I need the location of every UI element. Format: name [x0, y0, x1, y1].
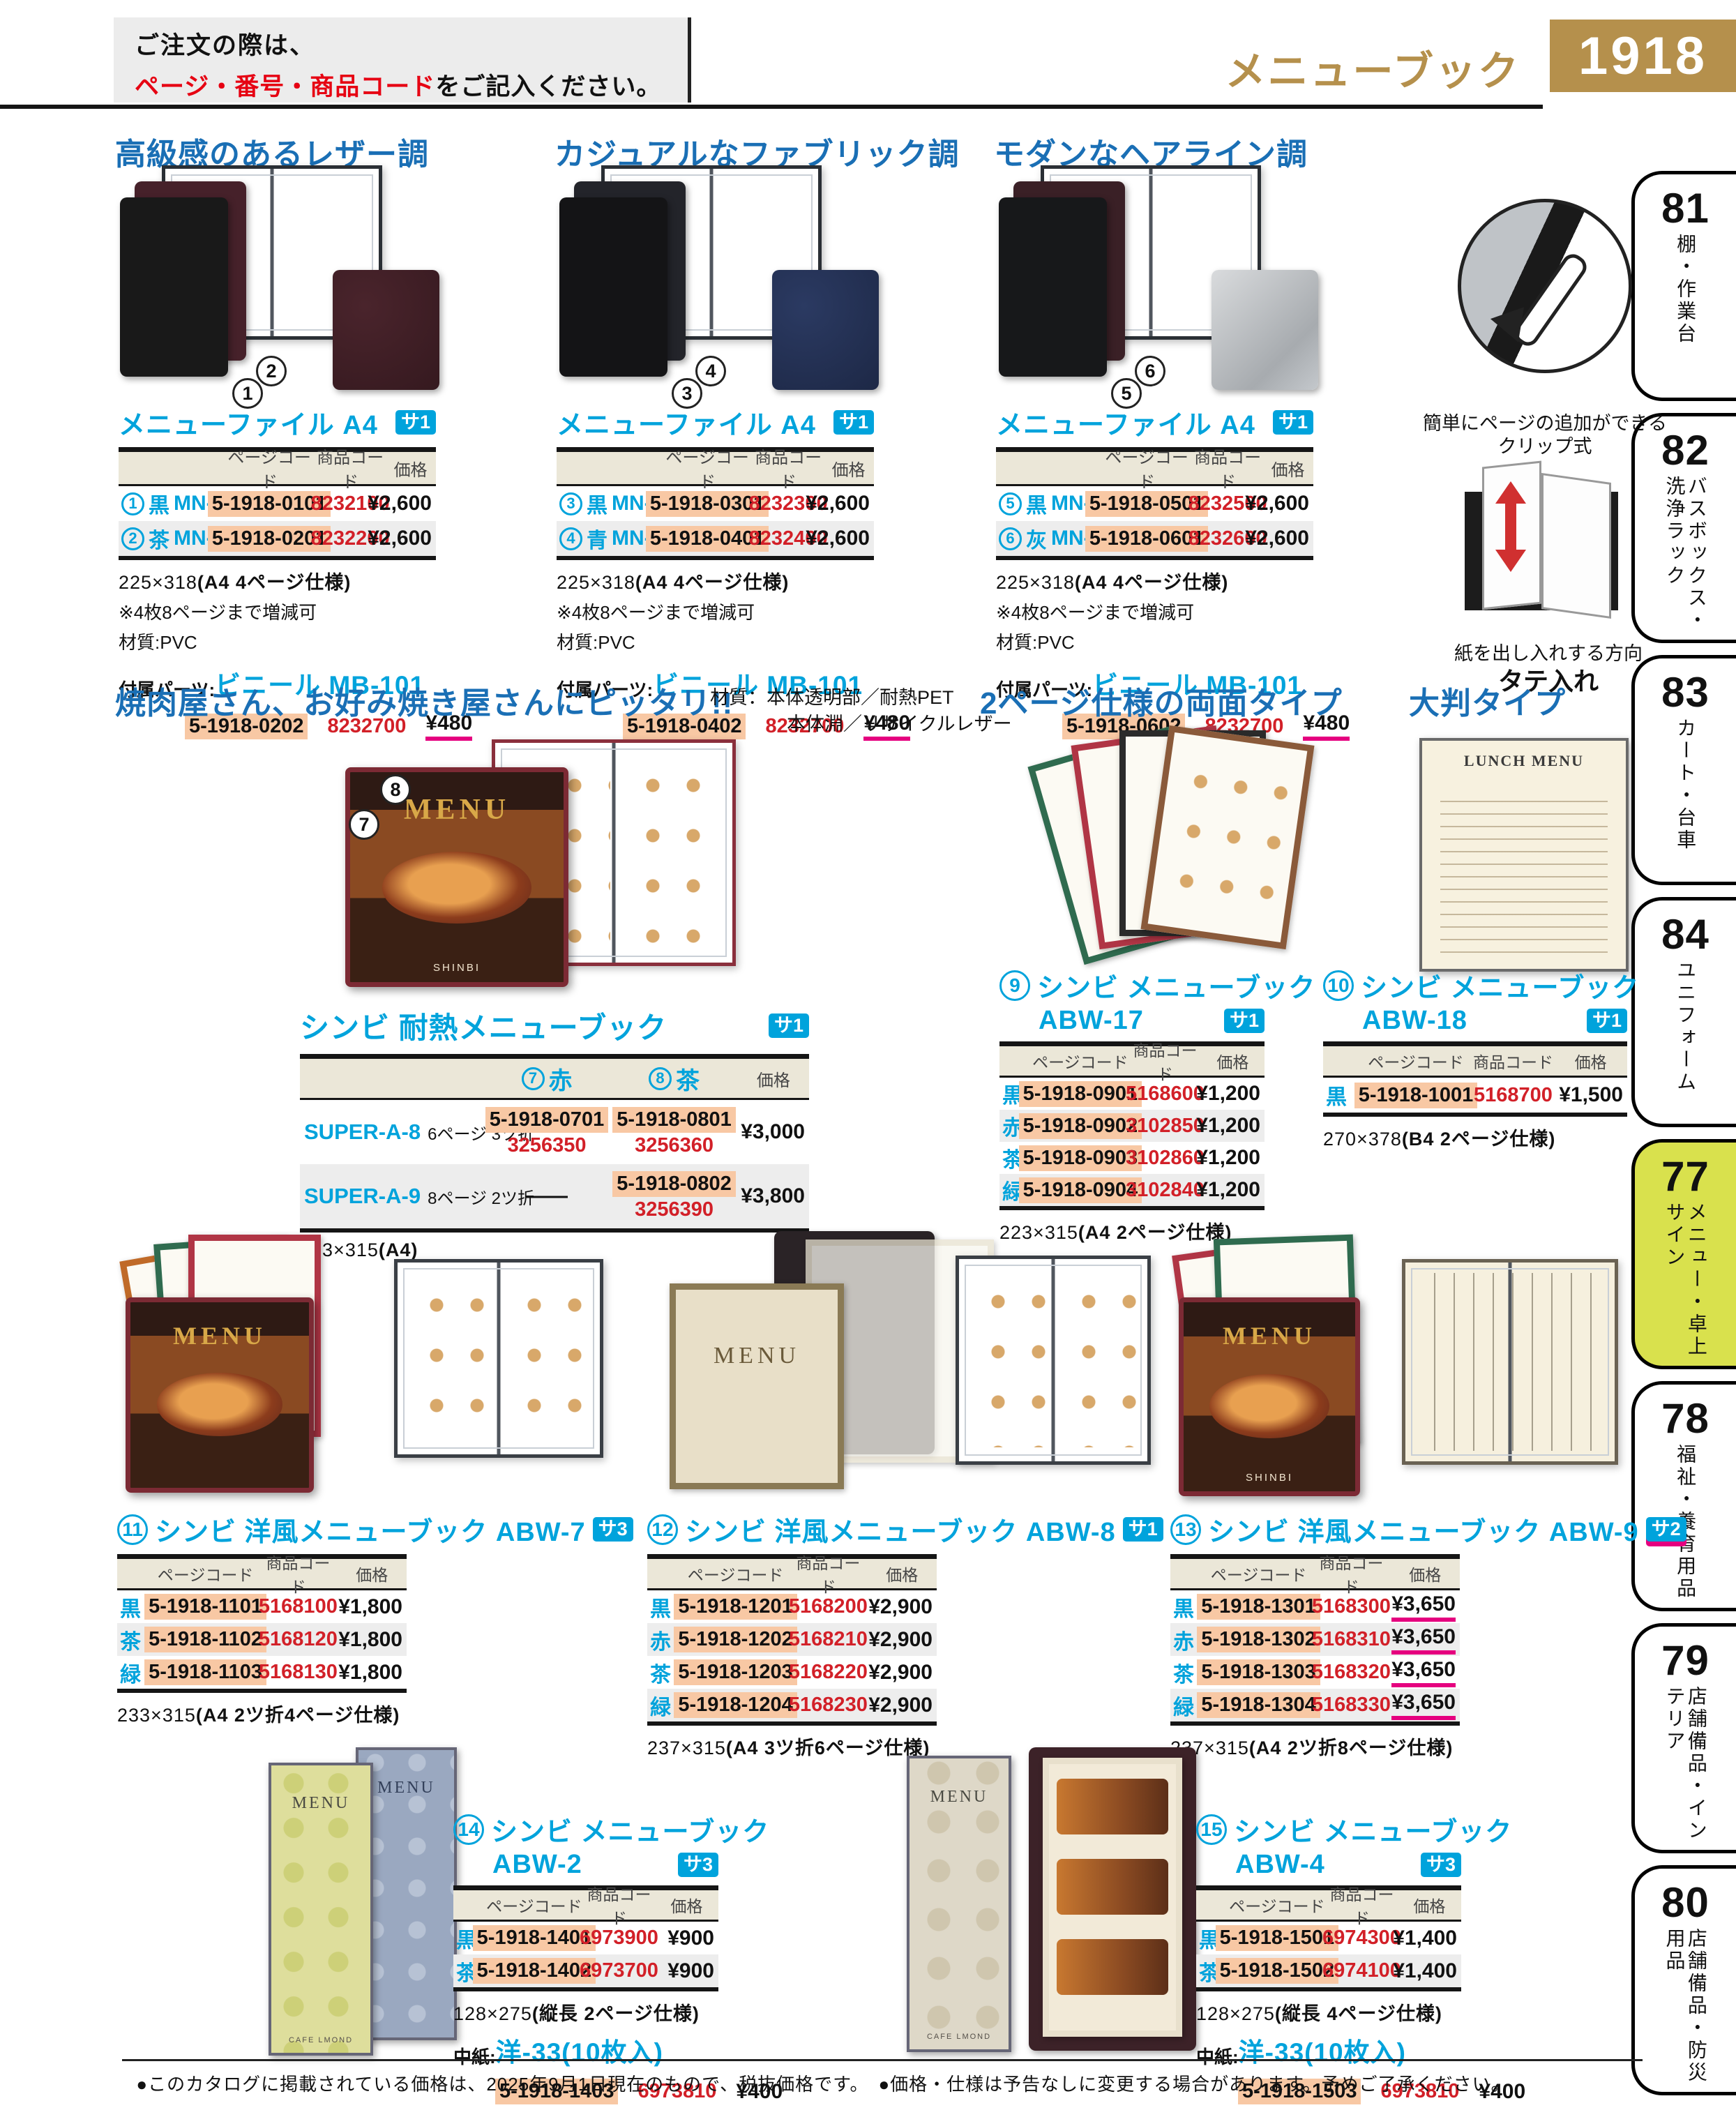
catalog-badge: サ2 [1646, 1517, 1686, 1542]
col-item-code: 商品コード [315, 444, 385, 492]
no-item-dash: —— [526, 1184, 568, 1208]
catalog-page: ご注文の際は、 ページ・番号・商品コードをご記入ください。 メニューブック 19… [0, 0, 1736, 2110]
tab-label: カート・台車 [1675, 718, 1696, 875]
ornate-menu-cover [670, 1283, 844, 1489]
product-block-heat-book: シンビ 耐熱メニューブック サ1 7赤 8茶 価格 SUPER-A-86ページ … [300, 1004, 809, 1261]
table-row: 黒 5-1918-1001 5168700 ¥1,500 [1323, 1078, 1627, 1113]
table-row: 黒 5-1918-1301 5168300 ¥3,650 [1170, 1590, 1460, 1623]
updown-arrow-icon [1505, 502, 1516, 551]
size-note: 128×275(縦長 2ページ仕様) [453, 1998, 718, 2026]
product-title: シンビ 耐熱メニューブック [300, 1004, 667, 1047]
leather-cover [333, 270, 439, 390]
price-table: 7赤 8茶 価格 SUPER-A-86ページ 3ツ折 5-1918-070132… [300, 1054, 809, 1233]
order-notice-emphasis: ページ・番号・商品コード [135, 73, 435, 100]
tab-number: 81 [1661, 184, 1709, 232]
product-photo-mn152: 6 5 [994, 160, 1440, 401]
photo-marker-2: 2 [256, 356, 287, 386]
photo-marker-8: 8 [380, 774, 411, 805]
table-row: 黒 5-1918-1401 6973900 ¥900 [453, 1922, 718, 1954]
menu-cover-text: MENU [670, 1343, 844, 1369]
tall-menu-card-beige: MENU CAFE LMOND [907, 1756, 1011, 2052]
table-row: 赤 5-1918-1302 5168310 ¥3,650 [1170, 1623, 1460, 1656]
sidebar-tab-78[interactable]: 78 福祉・養育用品 [1631, 1381, 1736, 1611]
product-block-abw18: 10 シンビ メニューブック ABW-18 サ1 ページコード 商品コード 価格… [1323, 966, 1627, 1151]
black-cover [559, 197, 667, 377]
black-cover [999, 197, 1107, 377]
product-model: ABW-2 [492, 1850, 582, 1880]
tall-menu-card-green: MENU CAFE LMOND [269, 1763, 373, 2056]
product-block-abw7: 11 シンビ 洋風メニューブック ABW-7 サ3 ページコード 商品コード 価… [117, 1510, 407, 1727]
table-row: 黒 5-1918-1501 6974300 ¥1,400 [1196, 1922, 1461, 1954]
item-code: 3256390 [635, 1198, 714, 1221]
size-note: 270×378(B4 2ページ仕様) [1323, 1124, 1627, 1151]
price: ¥3,800 [741, 1184, 805, 1208]
price: ¥2,600 [1245, 527, 1309, 550]
catalog-badge: サ1 [395, 410, 436, 435]
material-note-line1: 材質：本体透明部／耐熱PET [710, 682, 954, 709]
table-row: 緑 5-1918-1103 5168130 ¥1,800 [117, 1656, 407, 1689]
menu-photo-grid [624, 753, 722, 949]
table-row: 茶 5-1918-1102 5168120 ¥1,800 [117, 1623, 407, 1656]
sidebar-tab-80[interactable]: 80 店舗備品・防災用品 [1631, 1865, 1736, 2095]
size-note: 233×315(A4 2ツ折4ページ仕様) [117, 1700, 407, 1727]
food-photo [1057, 1779, 1168, 1834]
table-row: 1黒MN-150 5-1918-0101 8232100 ¥2,600 [119, 486, 436, 521]
menu-text-lines [1416, 1273, 1604, 1451]
paper-label: 中紙: [1196, 2043, 1239, 2069]
right-page [1541, 473, 1611, 619]
catalog-badge: サ3 [678, 1853, 718, 1878]
paper-name: 洋-33(10枚入) [1239, 2031, 1406, 2069]
section-heading-large-format: 大判タイプ [1409, 678, 1566, 723]
page-category-title: メニューブック [1130, 38, 1520, 97]
tab-label: 店舗備品・インテリア [1663, 1686, 1707, 1843]
price: ¥3,000 [741, 1120, 805, 1144]
table-row: 緑 5-1918-0904 3102840 ¥1,200 [999, 1174, 1265, 1206]
note: 材質:PVC [557, 628, 874, 654]
catalog-badge: サ1 [833, 410, 874, 435]
tab-number: 77 [1661, 1152, 1709, 1200]
catalog-badge: サ1 [1123, 1517, 1163, 1542]
product-title: シンビ 洋風メニューブック ABW-8 [685, 1510, 1116, 1548]
section-heading-two-page: 2ページ仕様の両面タイプ [980, 678, 1343, 723]
product-block-abw17: 9 シンビ メニューブック ABW-17 サ1 ページコード 商品コード 価格 … [999, 966, 1265, 1244]
product-photo-large-format: LUNCH MENU [1419, 738, 1629, 972]
table-row: 赤 5-1918-1202 5168210 ¥2,900 [647, 1623, 937, 1656]
menu-photo-grid [969, 1269, 1050, 1447]
table-row: 茶 5-1918-1502 6974100 ¥1,400 [1196, 1954, 1461, 1987]
product-title: シンビ メニューブック [491, 1810, 769, 1848]
price-table: ページコード 商品コード 価格 黒 5-1918-1301 5168300 ¥3… [1170, 1554, 1460, 1726]
sidebar-tab-81[interactable]: 81 棚・作業台 [1631, 171, 1736, 401]
product-title: シンビ メニューブック [1037, 966, 1315, 1004]
food-photo [1057, 1939, 1168, 1995]
note: ※4枚8ページまで増減可 [557, 598, 874, 624]
product-title: メニューファイル A4 [557, 403, 816, 442]
table-row: SUPER-A-86ページ 3ツ折 5-1918-07013256350 5-1… [300, 1100, 809, 1164]
page-number-badge: 1918 [1550, 20, 1736, 92]
photo-marker-3: 3 [672, 378, 702, 409]
price-table: ページコード 商品コード 価格 3黒MN-151 5-1918-0301 823… [557, 447, 874, 560]
tab-label: バスボックス・洗浄ラック [1663, 476, 1707, 633]
tab-number: 80 [1661, 1878, 1709, 1927]
footer-rule [122, 2059, 1643, 2061]
large-menu-sheet: LUNCH MENU [1419, 738, 1629, 972]
table-row: 茶 5-1918-0903 3102860 ¥1,200 [999, 1142, 1265, 1174]
product-photo-abw8: MENU [649, 1231, 1151, 1507]
tab-label: 店舗備品・防災用品 [1663, 1928, 1707, 2085]
black-cover [120, 197, 228, 377]
product-title: シンビ メニューブック [1361, 966, 1639, 1004]
menu-photo-grid [506, 1273, 589, 1440]
menu-photo-grid [408, 1273, 495, 1440]
product-block-abw9: 13 シンビ 洋風メニューブック ABW-9 サ2 ページコード 商品コード 価… [1170, 1510, 1460, 1760]
tab-label: 棚・作業台 [1675, 234, 1696, 391]
sidebar-tab-77-active[interactable]: 77 メニュー・卓上サイン [1631, 1139, 1736, 1369]
price: ¥2,600 [806, 492, 870, 515]
food-photo [1057, 1859, 1168, 1915]
tab-label: メニュー・卓上サイン [1663, 1202, 1707, 1359]
footer-note: ●このカタログに掲載されている価格は、2025年9月1日現在のもので、税抜価格で… [0, 2070, 1646, 2096]
catalog-badge: サ1 [1587, 1009, 1627, 1034]
table-row: 黒 5-1918-1101 5168100 ¥1,800 [117, 1590, 407, 1623]
header-rule [0, 105, 1543, 109]
paper-label: 中紙: [453, 2043, 496, 2069]
product-model: ABW-18 [1362, 1006, 1467, 1036]
size-note: 225×318(A4 4ページ仕様) [996, 567, 1313, 594]
product-title: メニューファイル A4 [996, 403, 1255, 442]
order-notice-line2: ページ・番号・商品コードをご記入ください。 [135, 67, 688, 103]
product-photo-mn150: 2 1 [115, 160, 561, 401]
order-notice-line1: ご注文の際は、 [135, 26, 688, 61]
clip-mechanism-illustration [1454, 199, 1636, 401]
material-note-line2: 本体淵／リサイクルレザー [787, 709, 1012, 736]
price: ¥2,600 [1245, 492, 1309, 515]
photo-marker-1: 1 [232, 378, 263, 409]
photo-marker-6: 6 [1135, 356, 1165, 386]
size-note: 225×318(A4 4ページ仕様) [119, 567, 436, 594]
price: ¥2,600 [806, 527, 870, 550]
price-table: ページコード 商品コード 価格 黒 5-1918-1101 5168100 ¥1… [117, 1554, 407, 1693]
section-heading-yakiniku: 焼肉屋さん、お好み焼き屋さんにピッタリ!! [115, 678, 733, 723]
menu-cover-steak: MENU SHINBI [1179, 1297, 1360, 1496]
product-photo-abw4: MENU CAFE LMOND [907, 1747, 1207, 2058]
table-row: 2茶MN-150 5-1918-0201 8232200 ¥2,600 [119, 521, 436, 556]
price-table: ページコード 商品コード 価格 黒 5-1918-1201 5168200 ¥2… [647, 1554, 937, 1726]
order-notice-box: ご注文の際は、 ページ・番号・商品コードをご記入ください。 [114, 17, 691, 103]
product-photo-heat-menu-books: MENU SHINBI 8 7 [328, 736, 746, 990]
table-row: 4青MN-151 5-1918-0401 8232400 ¥2,600 [557, 521, 874, 556]
table-row: 茶 5-1918-1303 5168320 ¥3,650 [1170, 1656, 1460, 1689]
catalog-badge: サ1 [1224, 1009, 1265, 1034]
navy-cover [772, 270, 879, 390]
sidebar-tab-84[interactable]: 84 ユニフォーム [1631, 897, 1736, 1127]
price-table: ページコード 商品コード 価格 5黒MN-152 5-1918-0501 823… [996, 447, 1313, 560]
size-note: 237×315(A4 2ツ折8ページ仕様) [1170, 1733, 1460, 1760]
catalog-badge: サ1 [769, 1013, 809, 1039]
paper-insert-illustration [1465, 464, 1632, 631]
product-photo-abw9: MENU SHINBI [1172, 1231, 1632, 1507]
photo-marker-5: 5 [1111, 378, 1142, 409]
clip-caption-line2: クリップ式 [1419, 431, 1670, 458]
price-table: ページコード 商品コード 価格 黒 5-1918-1001 5168700 ¥1… [1323, 1041, 1627, 1117]
tab-number: 79 [1661, 1636, 1709, 1685]
tab-label: ユニフォーム [1675, 960, 1696, 1117]
menu-photo-grid [1060, 1269, 1137, 1447]
menu-photo-grid [1154, 746, 1294, 924]
price: ¥2,600 [368, 527, 432, 550]
product-photo-mn151: 4 3 [554, 160, 1001, 401]
sidebar-tab-79[interactable]: 79 店舗備品・インテリア [1631, 1623, 1736, 1853]
photo-marker-7: 7 [349, 809, 379, 840]
table-row: 3黒MN-151 5-1918-0301 8232300 ¥2,600 [557, 486, 874, 521]
note: ※4枚8ページまで増減可 [119, 598, 436, 624]
table-row: SUPER-A-98ページ 2ツ折 —— 5-1918-08023256390 … [300, 1164, 809, 1228]
product-photo-abw2: MENU MENU CAFE LMOND [269, 1747, 471, 2058]
product-model: ABW-17 [1039, 1006, 1144, 1036]
table-row: 5黒MN-152 5-1918-0501 8232500 ¥2,600 [996, 486, 1313, 521]
price-table: ページコード 商品コード 価格 黒 5-1918-1501 6974300 ¥1… [1196, 1885, 1461, 1991]
tab-number: 78 [1661, 1394, 1709, 1442]
price-table: ページコード 商品コード 価格 黒 5-1918-0901 5168600 ¥1… [999, 1041, 1265, 1210]
catalog-badge: サ3 [1421, 1853, 1461, 1878]
order-notice-rest: をご記入ください。 [435, 73, 661, 100]
paper-name: 洋-33(10枚入) [496, 2031, 663, 2069]
table-row: 黒 5-1918-0901 5168600 ¥1,200 [999, 1078, 1265, 1110]
item-code: 3256350 [508, 1134, 587, 1157]
table-row: 茶 5-1918-1203 5168220 ¥2,900 [647, 1656, 937, 1689]
table-row: 赤 5-1918-0902 3102850 ¥1,200 [999, 1110, 1265, 1142]
size-note: 225×318(A4 4ページ仕様) [557, 567, 874, 594]
table-row: 6灰MN-152 5-1918-0601 8232600 ¥2,600 [996, 521, 1313, 556]
product-title: シンビ 洋風メニューブック ABW-7 [155, 1510, 586, 1548]
product-model: ABW-4 [1235, 1850, 1325, 1880]
catalog-badge: サ3 [593, 1517, 633, 1542]
product-title: シンビ 洋風メニューブック ABW-9 [1208, 1510, 1639, 1548]
silver-hairline-cover [1212, 270, 1318, 390]
note: ※4枚8ページまで増減可 [996, 598, 1313, 624]
item-code: 3256360 [635, 1134, 714, 1157]
page-code: 5-1918-0701 [485, 1107, 608, 1133]
price-table: ページコード 商品コード 価格 1黒MN-150 5-1918-0101 823… [119, 447, 436, 560]
catalog-badge: サ1 [1273, 410, 1313, 435]
product-photo-abw7: MENU [119, 1231, 607, 1507]
product-title: メニューファイル A4 [119, 403, 378, 442]
page-code: 5-1918-0802 [612, 1171, 735, 1197]
page-code: 5-1918-0801 [612, 1107, 735, 1133]
col-price: 価格 [385, 456, 436, 481]
photo-marker-4: 4 [695, 356, 726, 386]
product-block-abw8: 12 シンビ 洋風メニューブック ABW-8 サ1 ページコード 商品コード 価… [647, 1510, 937, 1760]
price-table: ページコード 商品コード 価格 黒 5-1918-1401 6973900 ¥9… [453, 1885, 718, 1991]
heat-menu-cover: MENU SHINBI [345, 767, 568, 987]
price: ¥2,600 [368, 492, 432, 515]
note: 材質:PVC [996, 628, 1313, 654]
table-row: 緑 5-1918-1304 5168330 ¥3,650 [1170, 1689, 1460, 1721]
menu-cover-steak: MENU [126, 1297, 314, 1493]
tab-number: 84 [1661, 910, 1709, 958]
table-row: 緑 5-1918-1204 5168230 ¥2,900 [647, 1689, 937, 1721]
table-row: 黒 5-1918-1201 5168200 ¥2,900 [647, 1590, 937, 1623]
note: 材質:PVC [119, 628, 436, 654]
table-row: 茶 5-1918-1402 6973700 ¥900 [453, 1954, 718, 1987]
product-title: シンビ メニューブック [1234, 1810, 1512, 1848]
col-page-code: ページコード [223, 444, 315, 492]
product-photo-abw17 [1032, 722, 1360, 973]
size-note: 237×315(A4 3ツ折6ページ仕様) [647, 1733, 937, 1760]
size-note: 128×275(縦長 4ページ仕様) [1196, 1998, 1461, 2026]
